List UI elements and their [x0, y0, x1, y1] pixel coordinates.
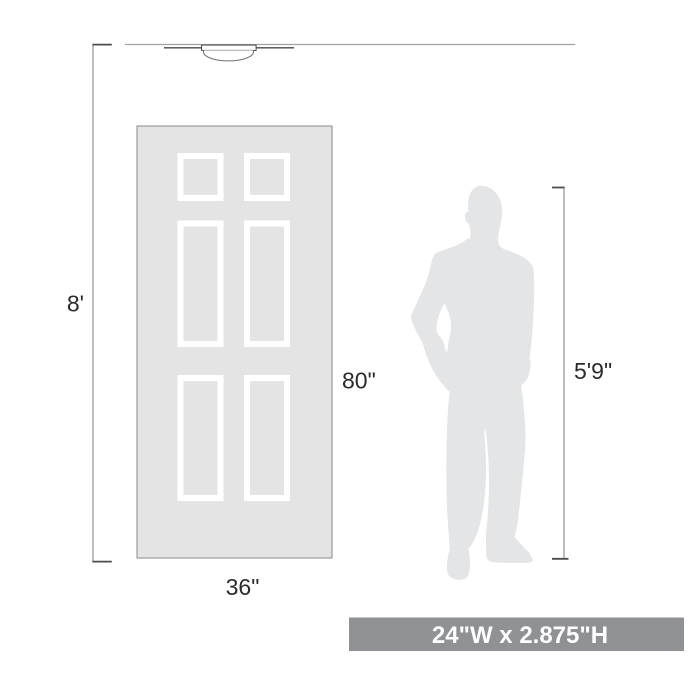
- svg-text:24"W x 2.875"H: 24"W x 2.875"H: [432, 622, 608, 649]
- svg-text:36": 36": [226, 574, 260, 600]
- svg-text:8': 8': [67, 291, 84, 317]
- svg-text:5'9": 5'9": [574, 358, 612, 384]
- svg-text:80": 80": [342, 368, 376, 394]
